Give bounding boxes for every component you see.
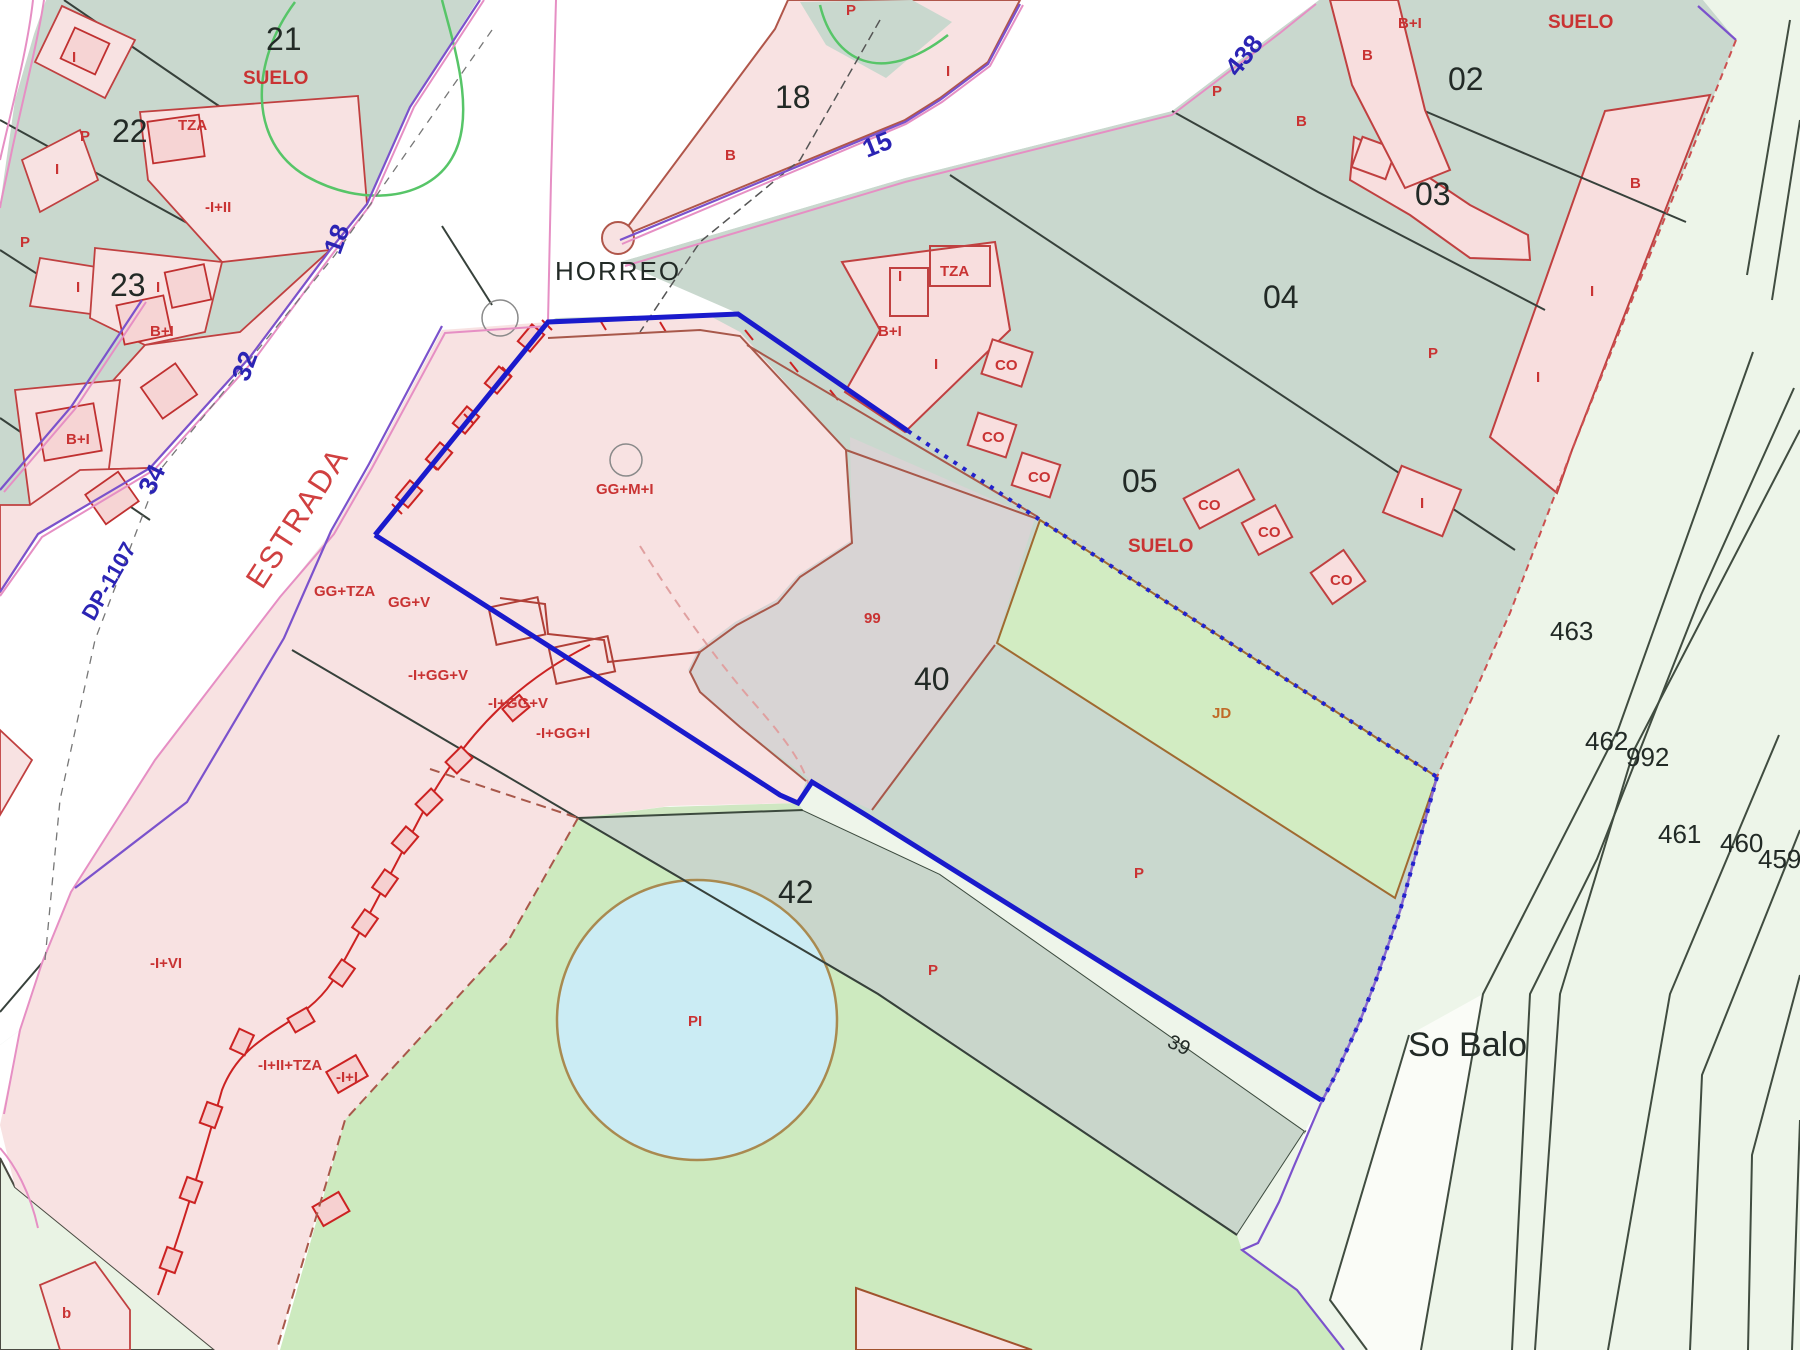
svg-text:I: I — [1590, 283, 1594, 300]
svg-text:B: B — [1362, 47, 1373, 64]
svg-text:GG+V: GG+V — [388, 594, 430, 611]
svg-text:GG+M+I: GG+M+I — [596, 481, 654, 498]
svg-text:B+I: B+I — [1398, 15, 1422, 32]
svg-text:-I+VI: -I+VI — [150, 955, 182, 972]
svg-text:CO: CO — [1258, 524, 1281, 541]
svg-text:GG+TZA: GG+TZA — [314, 583, 375, 600]
svg-text:42: 42 — [778, 874, 814, 910]
svg-text:02: 02 — [1448, 61, 1484, 97]
svg-text:P: P — [1212, 83, 1222, 100]
svg-text:SUELO: SUELO — [243, 68, 308, 89]
svg-text:I: I — [76, 279, 80, 296]
svg-text:I: I — [55, 161, 59, 178]
svg-text:PI: PI — [688, 1013, 702, 1030]
svg-text:So Balo: So Balo — [1408, 1026, 1527, 1064]
svg-text:992: 992 — [1626, 742, 1669, 772]
svg-text:B: B — [1296, 113, 1307, 130]
svg-text:99: 99 — [864, 610, 881, 627]
svg-text:I: I — [946, 63, 950, 80]
svg-text:CO: CO — [1028, 469, 1051, 486]
svg-text:462: 462 — [1585, 726, 1628, 756]
svg-text:B+I: B+I — [878, 323, 902, 340]
svg-text:JD: JD — [1212, 705, 1231, 722]
svg-text:B: B — [725, 147, 736, 164]
svg-text:P: P — [1428, 345, 1438, 362]
svg-text:-I+GG+V: -I+GG+V — [488, 695, 548, 712]
svg-text:40: 40 — [914, 661, 950, 697]
svg-text:CO: CO — [1198, 497, 1221, 514]
svg-text:B+I: B+I — [150, 323, 174, 340]
svg-text:04: 04 — [1263, 279, 1299, 315]
svg-text:-I+II: -I+II — [205, 199, 231, 216]
svg-text:P: P — [928, 962, 938, 979]
svg-text:-I+II+TZA: -I+II+TZA — [258, 1057, 322, 1074]
svg-text:CO: CO — [1330, 572, 1353, 589]
svg-text:CO: CO — [982, 429, 1005, 446]
svg-text:P: P — [20, 234, 30, 251]
svg-text:P: P — [846, 2, 856, 19]
svg-text:03: 03 — [1415, 176, 1451, 212]
svg-text:21: 21 — [266, 21, 302, 57]
svg-text:I: I — [934, 356, 938, 373]
svg-text:HORREO: HORREO — [555, 256, 681, 286]
svg-text:05: 05 — [1122, 463, 1158, 499]
svg-text:-I+I: -I+I — [336, 1069, 358, 1086]
svg-text:18: 18 — [775, 79, 811, 115]
svg-text:B: B — [1630, 175, 1641, 192]
svg-text:SUELO: SUELO — [1548, 12, 1613, 33]
svg-text:459: 459 — [1758, 844, 1800, 874]
svg-text:460: 460 — [1720, 828, 1763, 858]
svg-text:-I+GG+I: -I+GG+I — [536, 725, 590, 742]
svg-text:SUELO: SUELO — [1128, 536, 1193, 557]
svg-text:B+I: B+I — [66, 431, 90, 448]
svg-text:I: I — [1536, 369, 1540, 386]
svg-text:I: I — [1420, 495, 1424, 512]
svg-text:461: 461 — [1658, 819, 1701, 849]
svg-text:TZA: TZA — [178, 117, 207, 134]
svg-text:I: I — [898, 268, 902, 285]
svg-text:TZA: TZA — [940, 263, 969, 280]
svg-text:22: 22 — [112, 113, 148, 149]
svg-text:I: I — [156, 279, 160, 296]
svg-text:23: 23 — [110, 267, 146, 303]
svg-text:P: P — [80, 128, 90, 145]
svg-text:-I+GG+V: -I+GG+V — [408, 667, 468, 684]
svg-text:463: 463 — [1550, 616, 1593, 646]
svg-text:I: I — [72, 49, 76, 66]
svg-text:P: P — [1134, 865, 1144, 882]
svg-text:CO: CO — [995, 357, 1018, 374]
svg-text:b: b — [62, 1305, 71, 1322]
